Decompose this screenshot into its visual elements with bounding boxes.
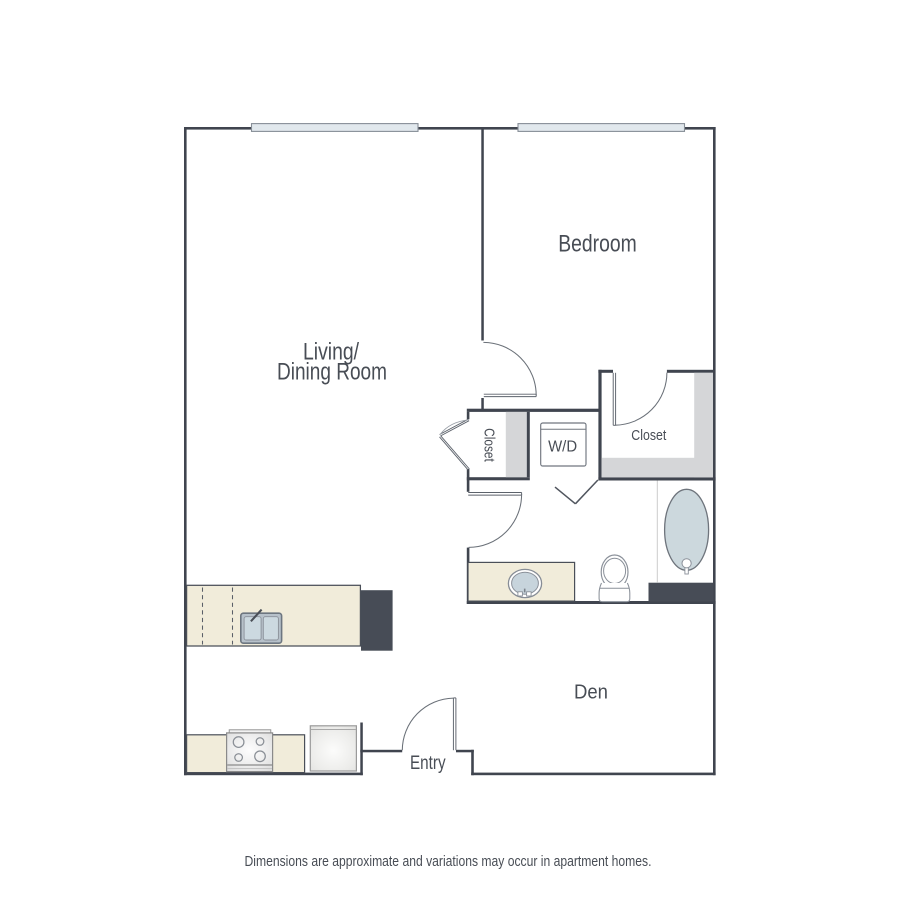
svg-text:Dining Room: Dining Room [277,358,387,385]
svg-text:Dimensions are approximate and: Dimensions are approximate and variation… [245,853,652,870]
svg-text:Closet: Closet [631,427,667,444]
svg-text:W/D: W/D [548,439,577,456]
svg-text:Closet: Closet [481,428,498,462]
svg-text:Den: Den [574,682,608,704]
svg-text:Entry: Entry [410,753,446,774]
svg-text:Bedroom: Bedroom [558,231,637,258]
